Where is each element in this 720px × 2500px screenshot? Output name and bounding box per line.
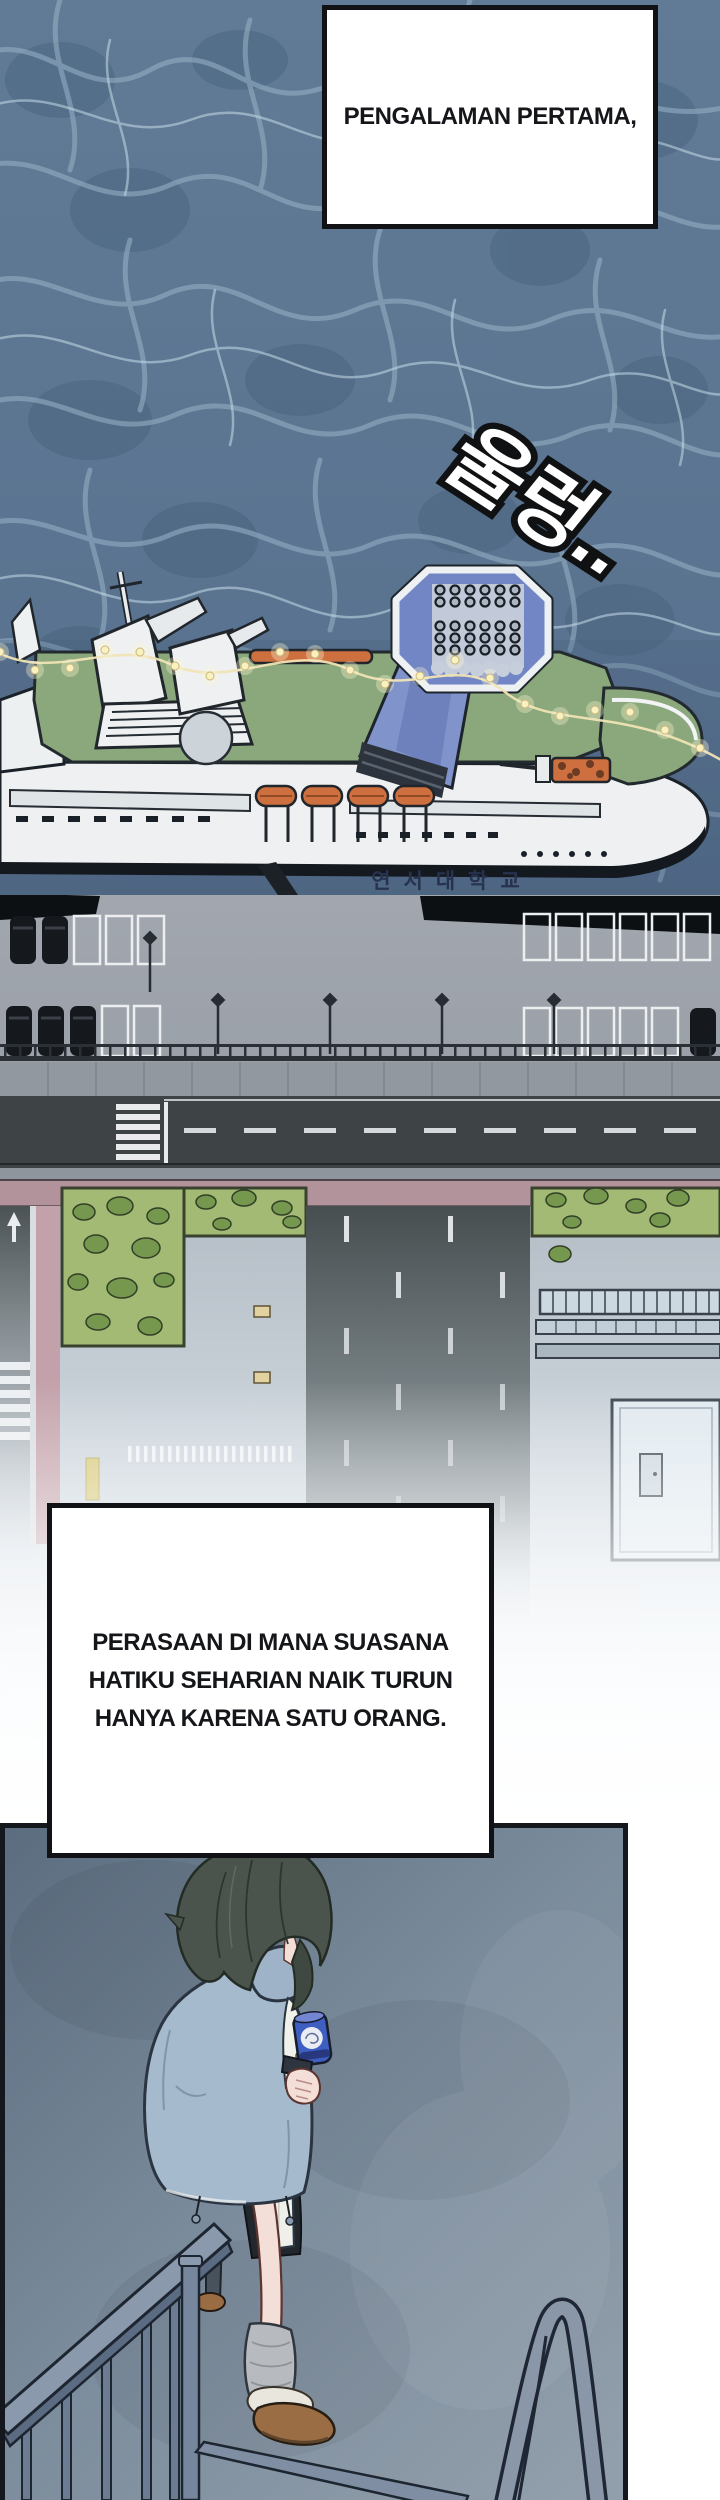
caption-middle-line-1: PERASAAN DI MANA SUASANA <box>89 1624 453 1662</box>
caption-middle-text: PERASAAN DI MANA SUASANA HATIKU SEHARIAN… <box>89 1624 453 1738</box>
sfx-overlay: 울렁.. <box>370 370 680 610</box>
caption-middle-line-2: HATIKU SEHARIAN NAIK TURUN <box>89 1662 453 1700</box>
caption-middle-line-3: HANYA KARENA SATU ORANG. <box>89 1700 453 1738</box>
comic-page: 연서대학교 울렁.. <box>0 0 720 2500</box>
road-horizontal <box>0 1096 720 1168</box>
caption-top-text: PENGALAMAN PERTAMA, <box>344 98 637 136</box>
caption-box-middle: PERASAAN DI MANA SUASANA HATIKU SEHARIAN… <box>47 1503 494 1858</box>
grass-square <box>62 1188 184 1346</box>
ship-hull-text: 연서대학교 <box>371 870 533 893</box>
caption-box-top: PENGALAMAN PERTAMA, <box>322 5 658 229</box>
korean-sfx-text: 울렁.. <box>429 413 651 591</box>
soda-can <box>292 2010 332 2066</box>
grass-strip-left <box>184 1188 306 1236</box>
bottom-panel-scene <box>0 1823 628 2500</box>
ship-crane-structures <box>92 598 268 764</box>
